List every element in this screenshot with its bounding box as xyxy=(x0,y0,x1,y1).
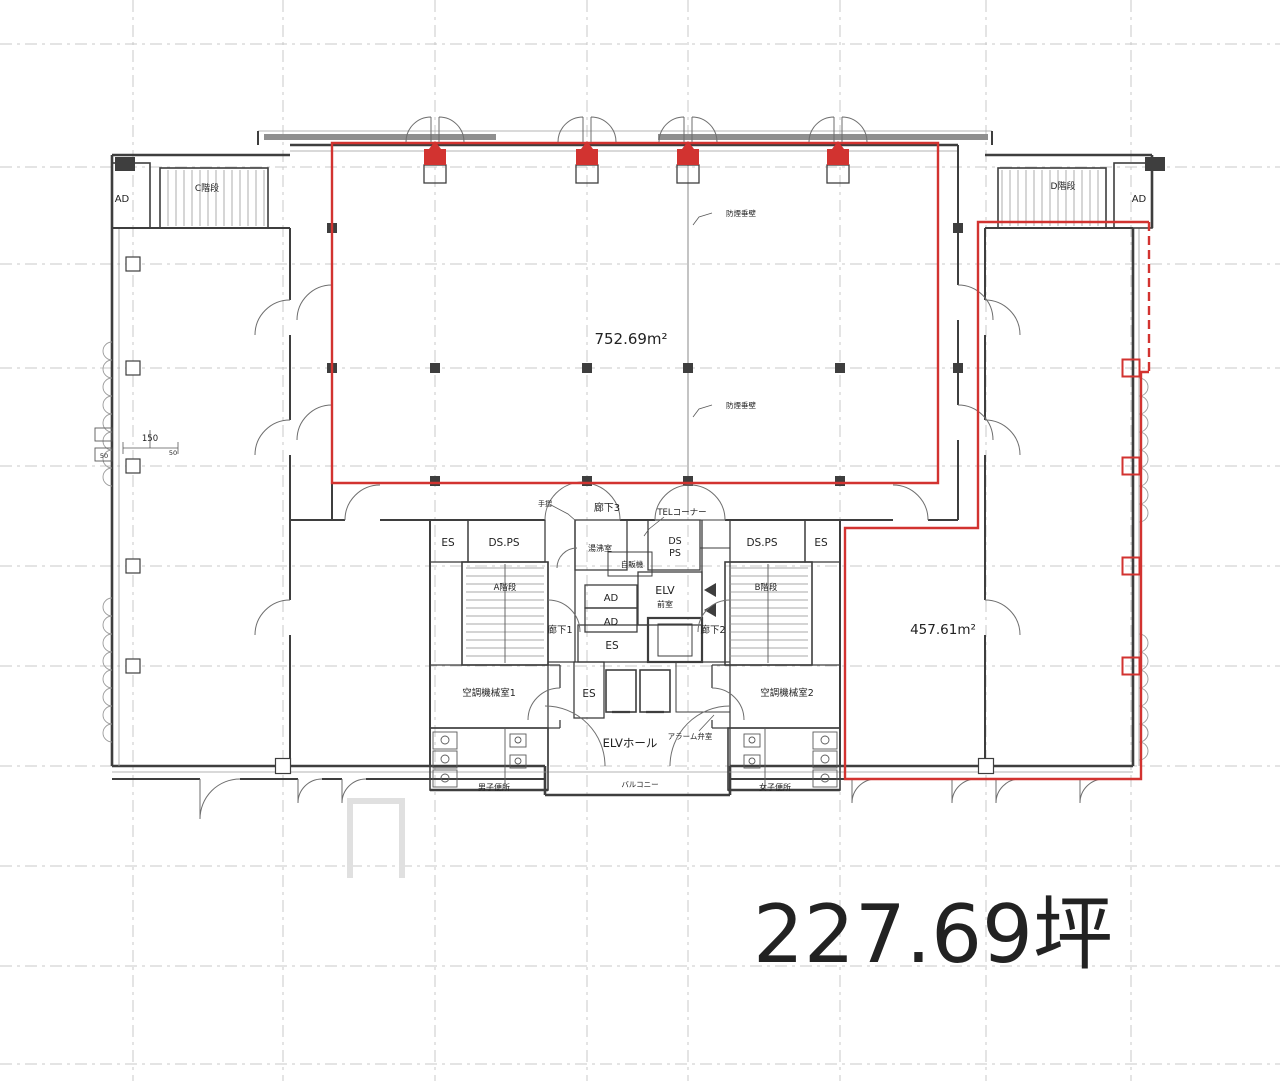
label-area-right: 457.61m² xyxy=(910,622,976,638)
red-zone-right xyxy=(845,222,1149,779)
label-corridor-3: 廊下3 xyxy=(594,501,620,514)
label-ds-mid: DS xyxy=(668,536,681,547)
floor-plan-drawing: ADC階段D階段AD752.69m²457.61m²防煙垂壁防煙垂壁廊下3手摺T… xyxy=(0,0,1280,1081)
label-elv-sub: 前室 xyxy=(657,599,673,609)
elevator-car-1 xyxy=(606,670,636,712)
label-corridor-1: 廊下1 xyxy=(547,624,572,636)
window-arcs xyxy=(103,342,1148,760)
red-zone-upper xyxy=(332,143,938,483)
label-smoke-wall-2: 防煙垂壁 xyxy=(726,400,756,410)
interior-walls xyxy=(112,145,1133,766)
label-dsps-right: DS.PS xyxy=(746,537,777,549)
door-bowtie xyxy=(704,583,716,597)
label-tesuri: 手摺 xyxy=(538,499,552,508)
label-es-topleft: ES xyxy=(441,537,455,549)
label-ad-topright: AD xyxy=(1132,194,1147,205)
label-c-stair: C階段 xyxy=(195,182,219,194)
door-arcs xyxy=(255,285,1020,766)
label-ad-core-2: AD xyxy=(604,617,619,628)
label-alarm-valve: アラーム弁室 xyxy=(668,731,713,741)
label-es-lower: ES xyxy=(582,688,596,700)
label-corridor-2: 廊下2 xyxy=(700,624,725,636)
label-total-area: 227.69坪 xyxy=(753,888,1113,981)
room-alarm-valve xyxy=(676,662,730,712)
label-tel-corner: TELコーナー xyxy=(656,508,706,518)
label-d-stair: D階段 xyxy=(1051,180,1076,192)
label-ad-topleft: AD xyxy=(115,194,130,205)
door-bowtie xyxy=(704,603,716,617)
label-ad-core-1: AD xyxy=(604,593,619,604)
corner-stair-blocks xyxy=(112,157,1165,228)
label-elv: ELV xyxy=(655,584,675,597)
elv-shaft-inner xyxy=(658,624,692,656)
label-yuwakashi: 湯沸室 xyxy=(588,543,612,553)
label-ps-mid: PS xyxy=(669,548,681,559)
label-ac-room-1: 空調機械室1 xyxy=(462,687,516,699)
label-a-stair: A階段 xyxy=(494,582,517,593)
room-womens-wc xyxy=(728,728,840,790)
elevator-car-2 xyxy=(640,670,670,712)
columns xyxy=(126,223,994,774)
label-balcony: バルコニー xyxy=(621,780,658,789)
label-b-stair: B階段 xyxy=(755,582,778,593)
floor-plan-canvas: ADC階段D階段AD752.69m²457.61m²防煙垂壁防煙垂壁廊下3手摺T… xyxy=(0,0,1280,1081)
tel-corner-niche xyxy=(700,520,730,548)
label-jihanki: 自販機 xyxy=(621,559,644,569)
label-smoke-wall-1: 防煙垂壁 xyxy=(726,208,756,218)
label-dim-50a: 50 xyxy=(100,452,108,460)
label-dim-50b: 50 xyxy=(169,449,177,457)
label-elv-hall: ELVホール xyxy=(603,736,658,750)
label-area-upper: 752.69m² xyxy=(594,330,667,348)
label-dsps-left: DS.PS xyxy=(488,537,519,549)
label-mens-wc: 男子便所 xyxy=(478,782,510,792)
outer-walls xyxy=(112,145,1152,795)
label-ac-room-2: 空調機械室2 xyxy=(760,687,814,699)
label-dim-150: 150 xyxy=(142,434,158,444)
label-es-topright: ES xyxy=(814,537,828,549)
label-womens-wc: 女子便所 xyxy=(759,782,791,792)
label-es-center: ES xyxy=(605,640,619,652)
leased-area-outline xyxy=(332,143,1149,779)
stair-b xyxy=(725,562,812,665)
